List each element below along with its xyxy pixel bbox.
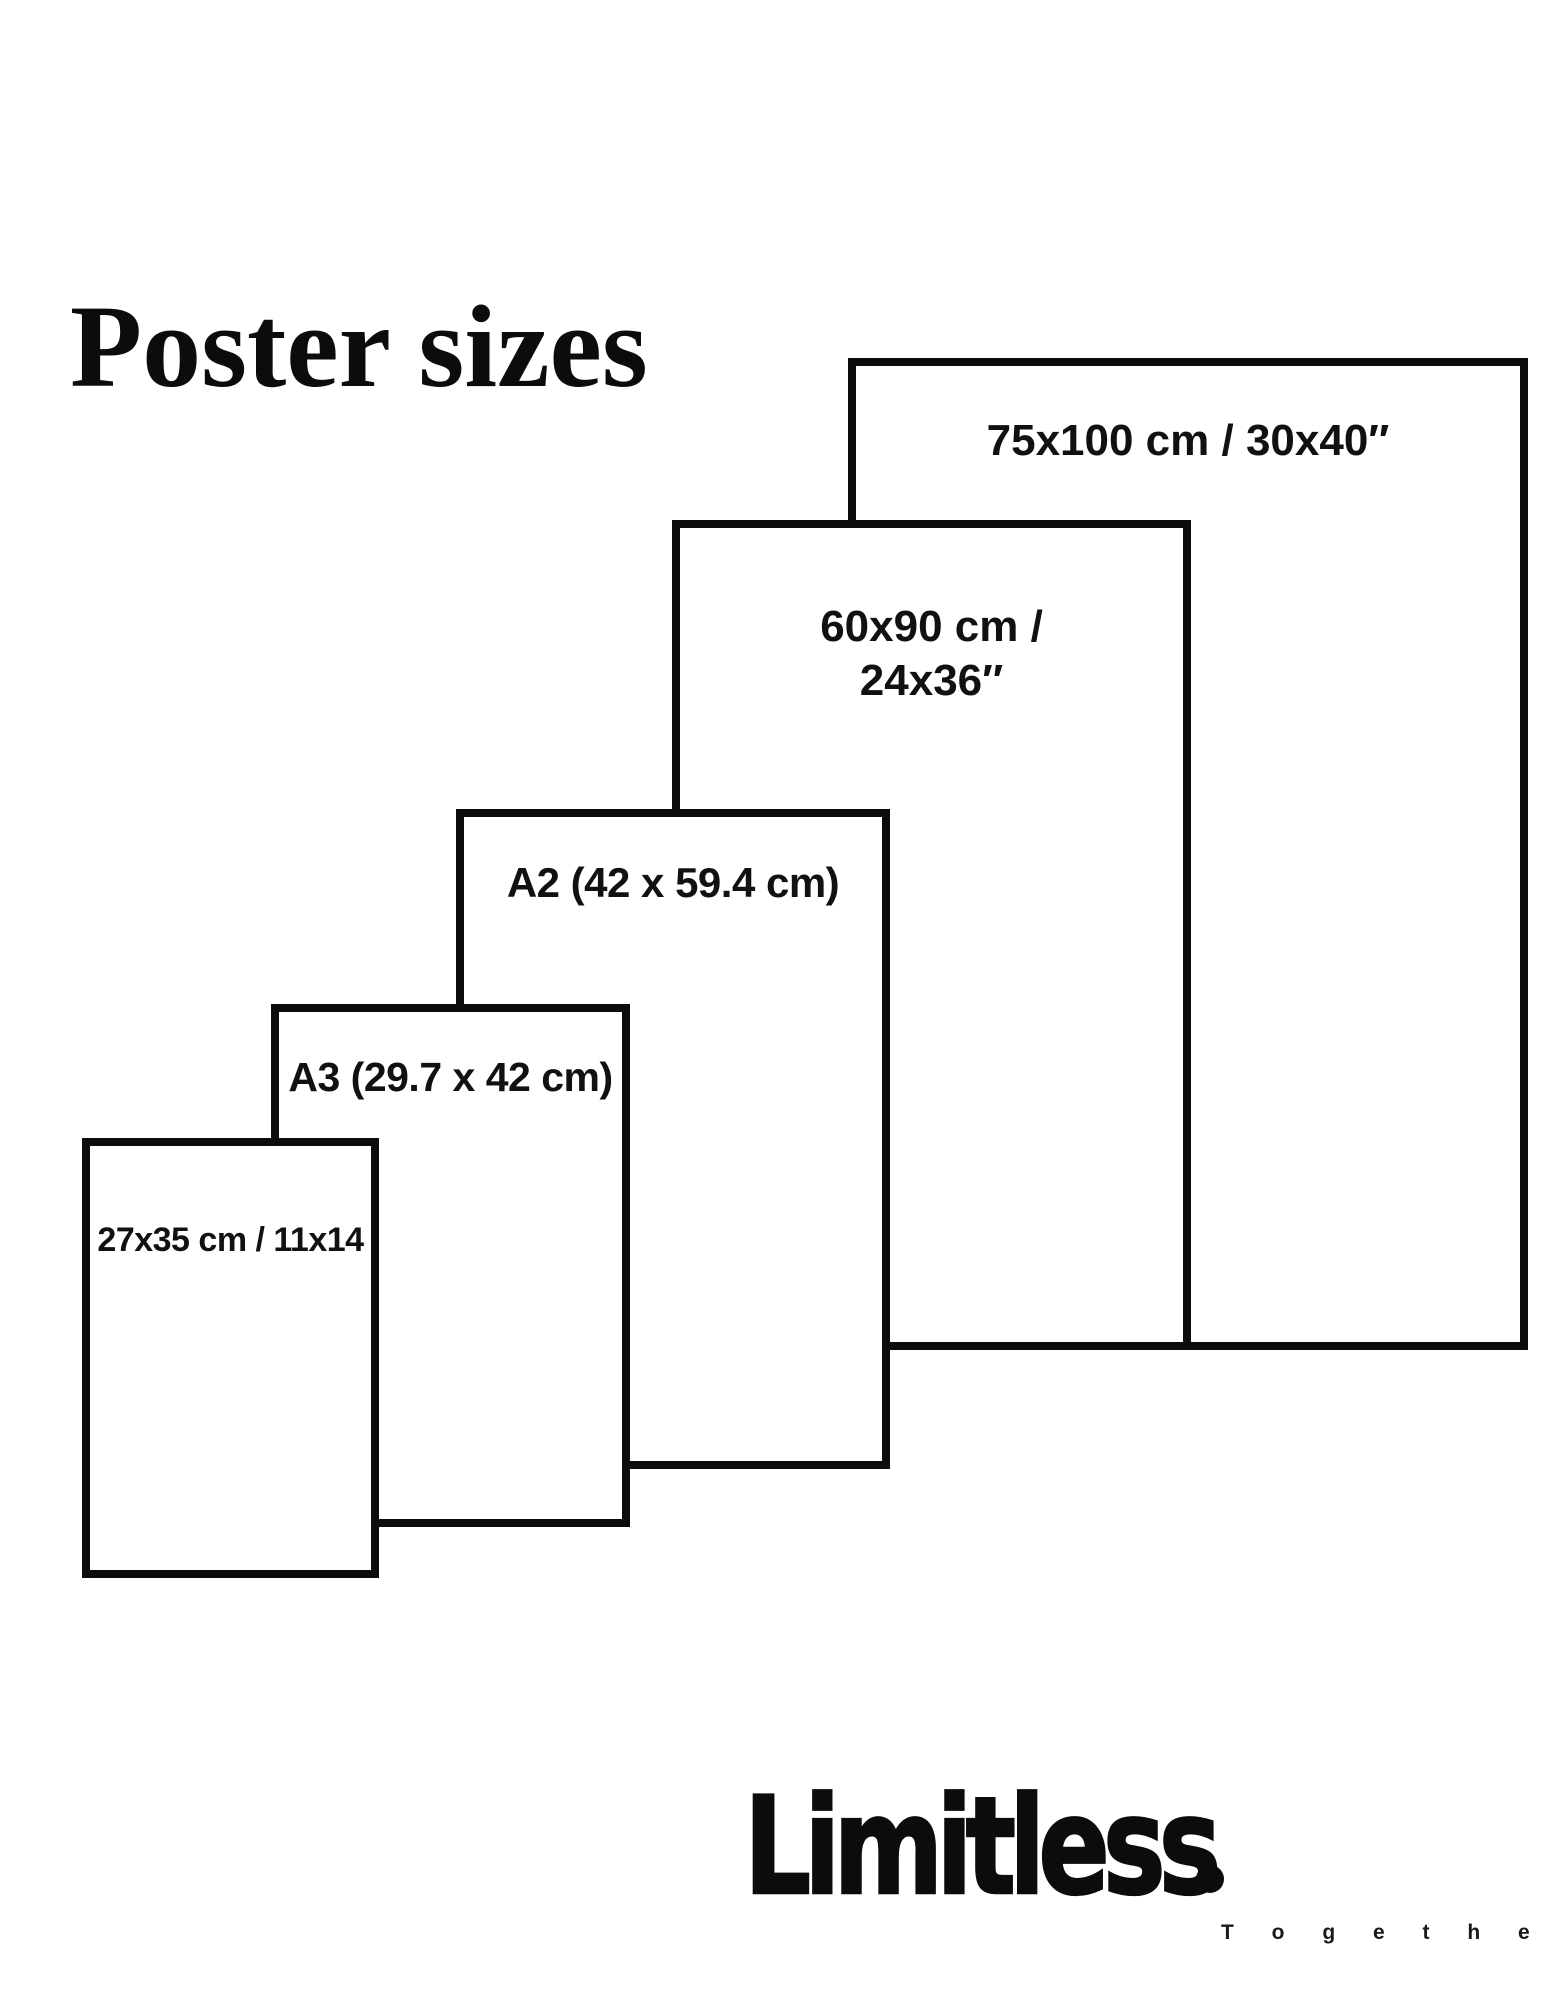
poster-size-label-60x90-line2: 24x36″ (680, 654, 1183, 708)
brand-logo-text: Limitless (744, 1779, 1215, 1914)
poster-size-label-60x90: 60x90 cm / 24x36″ (680, 600, 1183, 707)
brand-dot-icon (1196, 1865, 1224, 1893)
page-title: Poster sizes (70, 288, 648, 406)
brand-tagline: T o g e t h e r (1221, 1922, 1545, 1943)
poster-rect-27x35: 27x35 cm / 11x14 (82, 1138, 379, 1578)
poster-size-label-60x90-line1: 60x90 cm / (680, 600, 1183, 654)
poster-size-label-27x35: 27x35 cm / 11x14 (90, 1220, 371, 1261)
poster-size-label-a2: A2 (42 x 59.4 cm) (464, 857, 882, 908)
poster-size-label-a3: A3 (29.7 x 42 cm) (279, 1052, 622, 1102)
poster-size-label-75x100: 75x100 cm / 30x40″ (856, 414, 1520, 468)
